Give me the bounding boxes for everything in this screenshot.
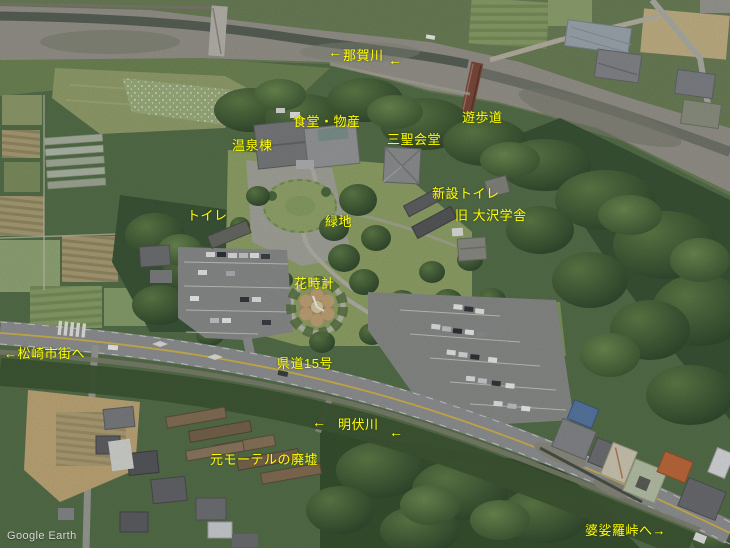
google-earth-viewport[interactable]: ← 那賀川 ← 食堂・物産 遊歩道 温泉棟 三聖会堂 新設トイレ トイレ 緑地 … (0, 0, 730, 548)
satellite-imagery (0, 0, 730, 548)
